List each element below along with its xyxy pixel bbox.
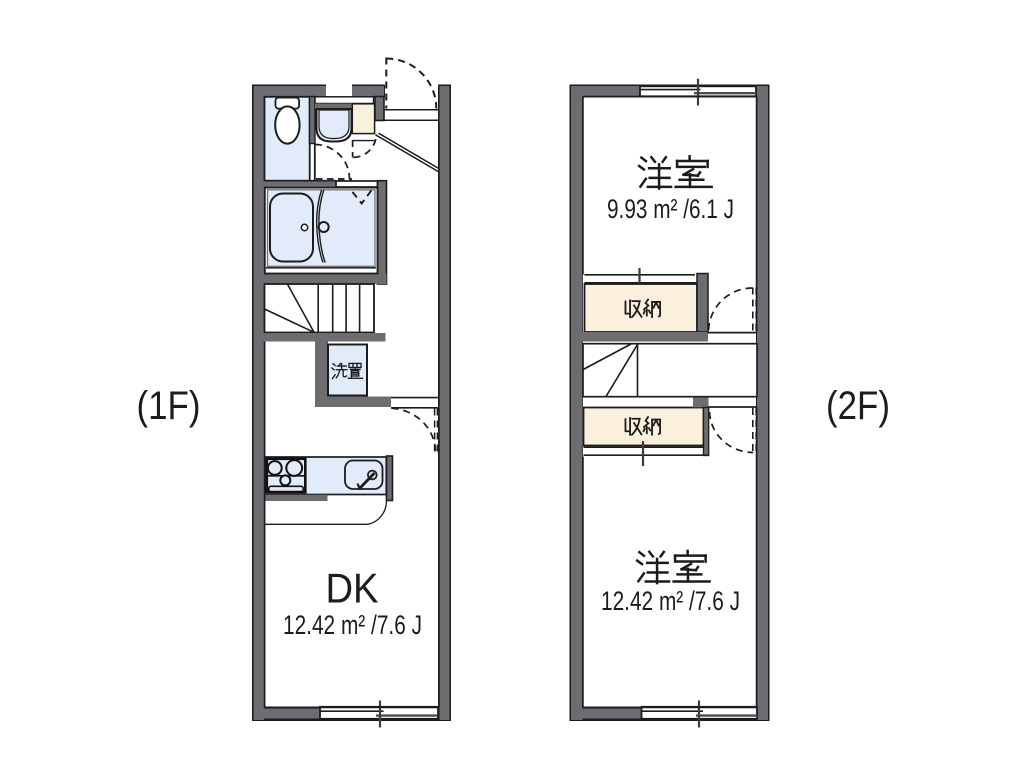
svg-text:12.42 m² /7.6 J: 12.42 m² /7.6 J [601,586,740,616]
svg-text:DK: DK [326,565,379,612]
svg-text:9.93 m² /6.1 J: 9.93 m² /6.1 J [607,194,734,224]
svg-text:12.42 m² /7.6 J: 12.42 m² /7.6 J [283,610,422,640]
svg-text:(1F): (1F) [137,384,201,428]
svg-text:(2F): (2F) [826,384,890,428]
